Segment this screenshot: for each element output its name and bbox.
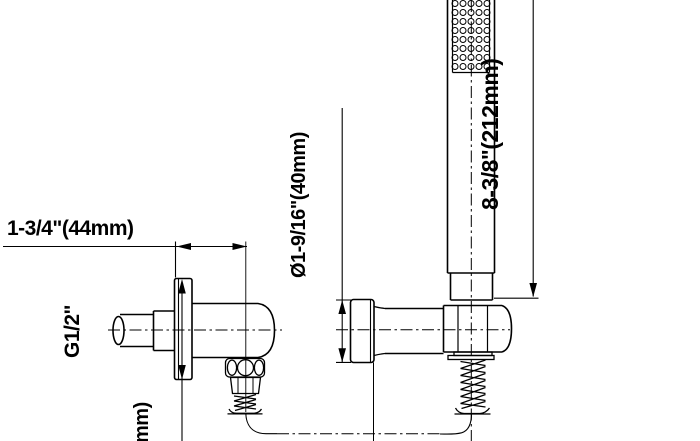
technical-drawing-canvas: 1-3/4"(44mm) 8-3/8"(212mm) Ø1-9/16"(40mm… xyxy=(0,0,700,441)
dimension-44mm xyxy=(3,242,247,278)
dimension-label-wand-length: 8-3/8"(212mm) xyxy=(476,55,504,210)
dimension-label-holder-diameter: Ø1-9/16"(40mm) xyxy=(286,112,312,278)
dimension-40mm xyxy=(336,108,351,362)
hose-spring-left xyxy=(234,395,256,411)
dimension-flange xyxy=(178,279,186,441)
hose-bend-left xyxy=(246,414,277,434)
inlet-pipe xyxy=(113,311,175,351)
dimension-label-inlet-thread: G1/2" xyxy=(60,296,86,358)
outlet-connector xyxy=(226,359,278,434)
hose-connection xyxy=(440,352,494,434)
holder-cup xyxy=(444,306,512,353)
dimension-label-flange-partial: mm) xyxy=(130,393,154,441)
dimension-label-top-width: 1-3/4"(44mm) xyxy=(7,218,157,240)
hose-spring-right xyxy=(461,360,486,409)
holder-wall-plate xyxy=(351,300,444,441)
holder-arm xyxy=(385,309,444,354)
wall-flange xyxy=(175,279,193,380)
hose-bend-right xyxy=(440,414,472,435)
